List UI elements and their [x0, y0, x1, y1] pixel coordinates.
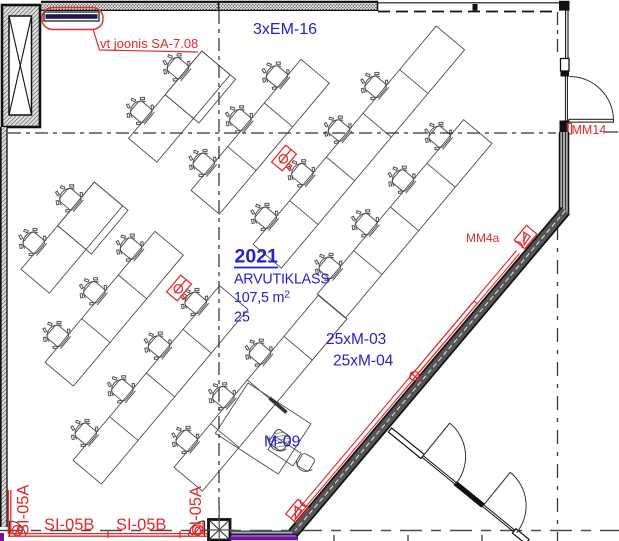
svg-text:25xM-03: 25xM-03 — [326, 331, 386, 348]
svg-text:M-09: M-09 — [264, 434, 301, 451]
svg-text:SI-05A: SI-05A — [187, 486, 205, 536]
svg-text:vt joonis SA-7.08: vt joonis SA-7.08 — [100, 36, 198, 51]
svg-text:2021: 2021 — [235, 246, 279, 268]
svg-text:MM4a: MM4a — [466, 231, 500, 245]
svg-text:ARVUTIKLASS: ARVUTIKLASS — [234, 272, 330, 288]
svg-text:SI-05B: SI-05B — [44, 516, 94, 534]
svg-text:107,5 m2: 107,5 m2 — [234, 289, 290, 307]
svg-text:MM14: MM14 — [572, 123, 607, 137]
svg-text:25xM-04: 25xM-04 — [333, 353, 394, 370]
svg-text:25: 25 — [234, 310, 250, 326]
svg-text:3xEM-16: 3xEM-16 — [253, 21, 317, 38]
svg-text:SI-05A: SI-05A — [15, 485, 33, 535]
svg-text:SI-05B: SI-05B — [116, 516, 166, 534]
